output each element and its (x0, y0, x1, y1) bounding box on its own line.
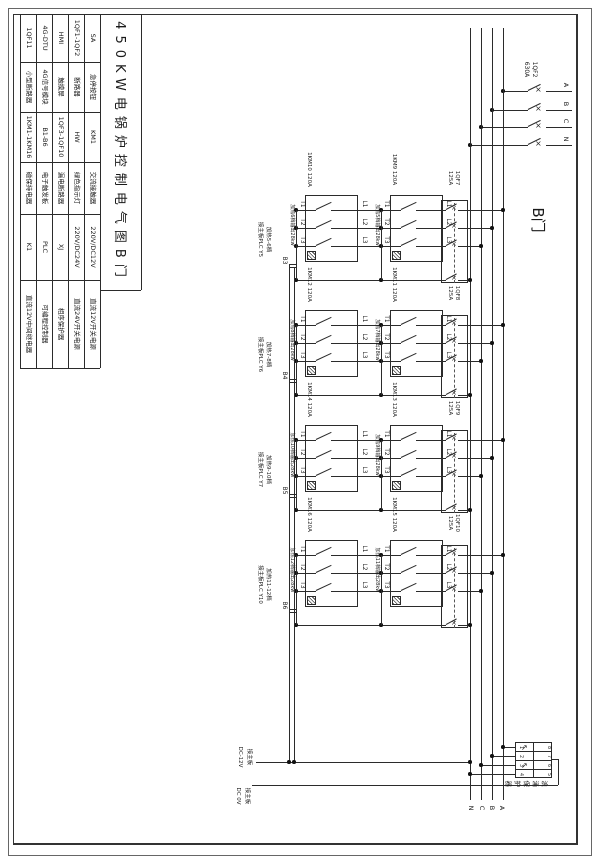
wire (470, 145, 528, 146)
legend-cell: 1QF3-1QF10 (56, 115, 65, 159)
control-riser (294, 267, 295, 762)
board-wire (552, 759, 558, 760)
schematic-drawing: 1QF11小型断路器1KM1-1KM16磁保持电器K1直流12V中间继电器4G-… (0, 0, 600, 864)
wire (458, 246, 481, 247)
wire (331, 325, 401, 326)
legend-cell: SA (88, 17, 97, 59)
terminal-label: L1 (444, 314, 452, 324)
wire (296, 246, 316, 247)
main-breaker-label: 1QF2 630A (523, 53, 538, 86)
wire (416, 246, 446, 247)
terminal-label: T3 (382, 350, 390, 360)
terminal-label: L3 (444, 350, 452, 360)
terminal-label: T2 (382, 562, 390, 572)
terminal-label: T2 (298, 447, 306, 457)
tap-wire (296, 440, 297, 510)
breaker-x-mark: × (535, 105, 542, 113)
terminal-label: L2 (360, 447, 368, 457)
junction-dot (292, 760, 296, 764)
control-wire (289, 497, 297, 498)
trigger-board-tag: B6 (280, 598, 288, 613)
terminal-label: L1 (360, 314, 368, 324)
terminal-label: T1 (382, 544, 390, 554)
terminal-label: T3 (298, 580, 306, 590)
wire (296, 228, 316, 229)
terminal-label: T2 (298, 217, 306, 227)
terminal-label: L1 (444, 199, 452, 209)
phase-label-bottom: C (477, 803, 486, 813)
terminal-label: T3 (298, 350, 306, 360)
terminal-label: T1 (298, 544, 306, 554)
junction-dot (479, 359, 483, 363)
surge-terminal: 2 (517, 753, 524, 760)
legend-grid-line (100, 14, 101, 368)
group-breaker-label: 1QF7 125A (446, 164, 460, 192)
legend-cell: K1 (24, 217, 33, 277)
junction-dot (479, 589, 483, 593)
terminal-label: L1 (360, 544, 368, 554)
wire (492, 110, 528, 111)
junction-dot (479, 244, 483, 248)
wire (416, 325, 446, 326)
surge-terminal: 8 (545, 744, 552, 751)
legend-cell: 相序保护器 (56, 283, 65, 365)
contactor-label: 1KM10 120A (304, 147, 314, 192)
junction-dot (468, 393, 472, 397)
wire (416, 573, 446, 574)
surge-terminal: 7 (545, 753, 552, 760)
bus-line (492, 28, 493, 800)
junction-dot (501, 553, 505, 557)
legend-cell: PLC (40, 217, 49, 277)
wire (296, 555, 316, 556)
linkage-dashed-line (454, 318, 455, 398)
terminal-label: T2 (382, 332, 390, 342)
junction-dot (287, 760, 291, 764)
wire (296, 476, 316, 477)
terminal-label: L1 (360, 429, 368, 439)
wire (416, 228, 446, 229)
control-wire (289, 609, 297, 610)
legend-cell: KM1 (88, 115, 97, 159)
terminal-label: T1 (298, 199, 306, 209)
control-wire (289, 612, 297, 613)
contactor-label: 1KM13 120A (389, 377, 399, 422)
tap-wire (381, 440, 382, 510)
stage-label: 加热7档输出28kw (373, 312, 381, 368)
legend-grid-line (84, 14, 85, 368)
linkage-dashed-line (454, 203, 455, 283)
junction-dot (468, 508, 472, 512)
breaker-x-mark: × (535, 122, 542, 130)
terminal-label: T2 (298, 562, 306, 572)
breaker-x-mark: × (535, 86, 542, 94)
board-wire-label: 接主板 DC 0V (234, 780, 251, 812)
terminal-label: T1 (298, 429, 306, 439)
terminal-label: T2 (298, 332, 306, 342)
wire (296, 210, 316, 211)
legend-cell: 直流12V中间继电器 (24, 283, 33, 365)
wire (296, 280, 446, 281)
terminal-label: T3 (298, 465, 306, 475)
control-wire (289, 264, 297, 265)
terminal-label: L2 (444, 562, 452, 572)
legend-cell: 磁保持电器 (24, 165, 33, 211)
stage-label: 加热6档输出28kw (288, 197, 296, 253)
wire (296, 591, 316, 592)
linkage-dashed-line (454, 433, 455, 513)
surge-protector-label-char: 浪 (539, 781, 551, 790)
control-riser (289, 264, 290, 762)
legend-cell: 直流12V开关电源 (88, 283, 97, 365)
wire (416, 440, 446, 441)
legend-cell: 漏电断路器 (56, 165, 65, 211)
legend-cell: XJ (56, 217, 65, 277)
legend-grid-line (100, 14, 141, 15)
terminal-label: L3 (360, 235, 368, 245)
group-plc-label: 加热11-12档 接主板PLC Y10 (256, 556, 272, 613)
trigger-board-tag: B3 (280, 253, 288, 268)
wire (296, 343, 316, 344)
wire (458, 210, 503, 211)
phase-label-top: B (561, 99, 570, 109)
legend-grid-line (100, 290, 141, 291)
tap-wire (296, 555, 297, 625)
wire (416, 591, 446, 592)
junction-dot (501, 745, 505, 749)
legend-cell: 绿色指示灯 (72, 165, 81, 211)
terminal-label: T3 (382, 580, 390, 590)
contactor-label: 1KM15 120A (389, 492, 399, 537)
terminal-label: L2 (360, 332, 368, 342)
control-wire (289, 379, 297, 380)
board-wire-label: 接主板 DC-12V (236, 740, 253, 774)
contactor-coil (392, 366, 401, 375)
legend-cell: HMI (56, 17, 65, 59)
wire (503, 91, 528, 92)
legend-grid-line (20, 14, 100, 15)
surge-arrow-icon: ↗ (521, 744, 528, 752)
wire (416, 343, 446, 344)
control-wire (289, 382, 297, 383)
phase-label-top: C (561, 116, 570, 126)
surge-terminal: 6 (545, 762, 552, 769)
contactor-coil (392, 596, 401, 605)
control-wire (289, 494, 297, 495)
wire (296, 361, 316, 362)
phase-label-bottom: A (497, 803, 506, 813)
legend-cell: 断路器 (72, 65, 81, 109)
wire (296, 510, 446, 511)
surge-wire (481, 765, 515, 766)
wire (458, 458, 492, 459)
wire (458, 555, 503, 556)
contactor-label: 1KM16 120A (304, 492, 314, 537)
junction-dot (468, 278, 472, 282)
wire (331, 591, 401, 592)
phase-label-top: N (561, 134, 570, 144)
wire (458, 325, 503, 326)
breaker-x-mark: × (535, 140, 542, 148)
legend-grid-line (20, 214, 100, 215)
legend-cell: B1-B6 (40, 115, 49, 159)
drawing-title: 450KW电锅炉控制电气图B门 (106, 20, 132, 284)
contactor-coil (307, 596, 316, 605)
wire (458, 343, 492, 344)
junction-dot (490, 456, 494, 460)
terminal-label: T3 (382, 235, 390, 245)
legend-cell: 220V/DC12V (88, 217, 97, 277)
terminal-label: T2 (382, 447, 390, 457)
surge-terminal: 5 (545, 771, 552, 778)
wire (331, 476, 401, 477)
legend-cell: HW (72, 115, 81, 159)
legend-grid-line (20, 368, 100, 369)
wire (546, 110, 572, 111)
board-wire (558, 759, 559, 785)
wire (296, 440, 316, 441)
wire (331, 458, 401, 459)
group-plc-label: 加热7-8档 接主板PLC Y6 (256, 326, 272, 383)
tap-wire (296, 210, 297, 280)
terminal-label: L3 (360, 350, 368, 360)
wire (458, 440, 503, 441)
phase-label-bottom: N (466, 803, 475, 813)
stage-label: 加热9档输出28kw (373, 427, 381, 483)
bus-line (481, 28, 482, 800)
legend-grid-line (20, 62, 100, 63)
contactor-coil (307, 481, 316, 490)
wire (296, 625, 446, 626)
terminal-label: T1 (298, 314, 306, 324)
phase-label-top: A (561, 80, 570, 90)
terminal-label: L2 (360, 562, 368, 572)
trigger-board-tag: B4 (280, 368, 288, 383)
legend-cell: 触摸屏 (56, 65, 65, 109)
wire (331, 343, 401, 344)
wire (331, 440, 401, 441)
wire (458, 228, 492, 229)
wire (331, 228, 401, 229)
contactor-label: 1KM11 120A (389, 262, 399, 307)
terminal-label: L1 (444, 544, 452, 554)
legend-cell: 交流接触器 (88, 165, 97, 211)
tap-wire (381, 210, 382, 280)
wire (458, 476, 481, 477)
wire (296, 395, 446, 396)
surge-terminal: 4 (517, 771, 524, 778)
wire (416, 458, 446, 459)
terminal-label: T3 (382, 465, 390, 475)
door-label: B门 (527, 194, 549, 246)
legend-cell: 4G信号模块 (40, 65, 49, 109)
group-breaker-label: 1QF8 125A (446, 279, 460, 307)
surge-wire (470, 774, 515, 775)
junction-dot (468, 760, 472, 764)
wire (296, 325, 316, 326)
surge-wire (492, 756, 515, 757)
group-breaker-label: 1QF10 125A (446, 509, 460, 537)
wire (546, 91, 572, 92)
wire (416, 361, 446, 362)
wire (416, 476, 446, 477)
legend-cell: 急停按钮 (88, 65, 97, 109)
legend-cell: 直流24V开关电源 (72, 283, 81, 365)
surge-protector-label: 器护保涌浪 (504, 779, 550, 791)
contactor-coil (392, 481, 401, 490)
bus-line (503, 28, 504, 800)
phase-label-bottom: B (487, 803, 496, 813)
terminal-label: L3 (360, 580, 368, 590)
terminal-label: T1 (382, 429, 390, 439)
junction-dot (490, 571, 494, 575)
legend-grid-line (141, 14, 142, 290)
terminal-label: L2 (444, 447, 452, 457)
wire (458, 361, 481, 362)
junction-dot (490, 341, 494, 345)
legend-grid-line (20, 162, 100, 163)
terminal-label: L3 (360, 465, 368, 475)
junction-dot (468, 623, 472, 627)
junction-dot (479, 474, 483, 478)
terminal-label: L3 (444, 580, 452, 590)
terminal-label: L3 (444, 235, 452, 245)
tap-wire (381, 325, 382, 395)
legend-cell: 电子触发板 (40, 165, 49, 211)
surge-wire (503, 747, 515, 748)
terminal-label: T1 (382, 199, 390, 209)
group-plc-label: 加热9-10档 接主板PLC Y7 (256, 441, 272, 498)
junction-dot (468, 772, 472, 776)
wire (458, 573, 492, 574)
terminal-label: L2 (444, 332, 452, 342)
contactor-coil (307, 366, 316, 375)
wire (481, 127, 528, 128)
wire (416, 210, 446, 211)
terminal-label: L2 (444, 217, 452, 227)
legend-cell: 1QF11 (24, 17, 33, 59)
legend-grid-line (20, 112, 100, 113)
terminal-label: T1 (382, 314, 390, 324)
junction-dot (490, 226, 494, 230)
contactor-label: 1KM9 120A (389, 147, 399, 192)
linkage-dashed-line (454, 548, 455, 628)
control-wire (289, 267, 297, 268)
group-breaker-label: 1QF9 125A (446, 394, 460, 422)
wire (331, 210, 401, 211)
tap-wire (381, 555, 382, 625)
legend-grid-line (68, 14, 69, 368)
contactor-coil (392, 251, 401, 260)
legend-cell: 可编程控制器 (40, 283, 49, 365)
wire (546, 127, 572, 128)
junction-dot (501, 323, 505, 327)
legend-cell: 1QF1-1QF2 (72, 17, 81, 59)
surge-arrow-icon: ↗ (521, 762, 528, 770)
tap-wire (296, 325, 297, 395)
wire (416, 555, 446, 556)
stage-label: 加热11档输出28kw (373, 542, 381, 598)
terminal-label: L3 (444, 465, 452, 475)
junction-dot (490, 754, 494, 758)
bus-line (470, 28, 471, 800)
legend-cell: 1KM1-1KM16 (24, 115, 33, 159)
contactor-coil (307, 251, 316, 260)
wire (458, 591, 481, 592)
terminal-label: T3 (298, 235, 306, 245)
trigger-board-tag: B5 (280, 483, 288, 498)
contactor-label: 1KM12 120A (304, 262, 314, 307)
contactor-label: 1KM14 120A (304, 377, 314, 422)
wire (331, 246, 401, 247)
wire (331, 361, 401, 362)
legend-cell: 4G-DTU (40, 17, 49, 59)
wire (546, 145, 572, 146)
terminal-label: L2 (360, 217, 368, 227)
legend-grid-line (20, 14, 21, 368)
legend-grid-line (52, 14, 53, 368)
terminal-label: L1 (444, 429, 452, 439)
stage-label: 加热5档输出28kw (373, 197, 381, 253)
wire (296, 573, 316, 574)
junction-dot (501, 208, 505, 212)
legend-grid-line (20, 280, 100, 281)
junction-dot (479, 763, 483, 767)
legend-cell: 小型断路器 (24, 65, 33, 109)
junction-dot (501, 438, 505, 442)
terminal-label: L1 (360, 199, 368, 209)
wire (331, 555, 401, 556)
wire (331, 573, 401, 574)
legend-cell: 220V/DC24V (72, 217, 81, 277)
terminal-label: T2 (382, 217, 390, 227)
group-plc-label: 加热5-6档 接主板PLC Y5 (256, 211, 272, 268)
wire (296, 458, 316, 459)
legend-grid-line (36, 14, 37, 368)
